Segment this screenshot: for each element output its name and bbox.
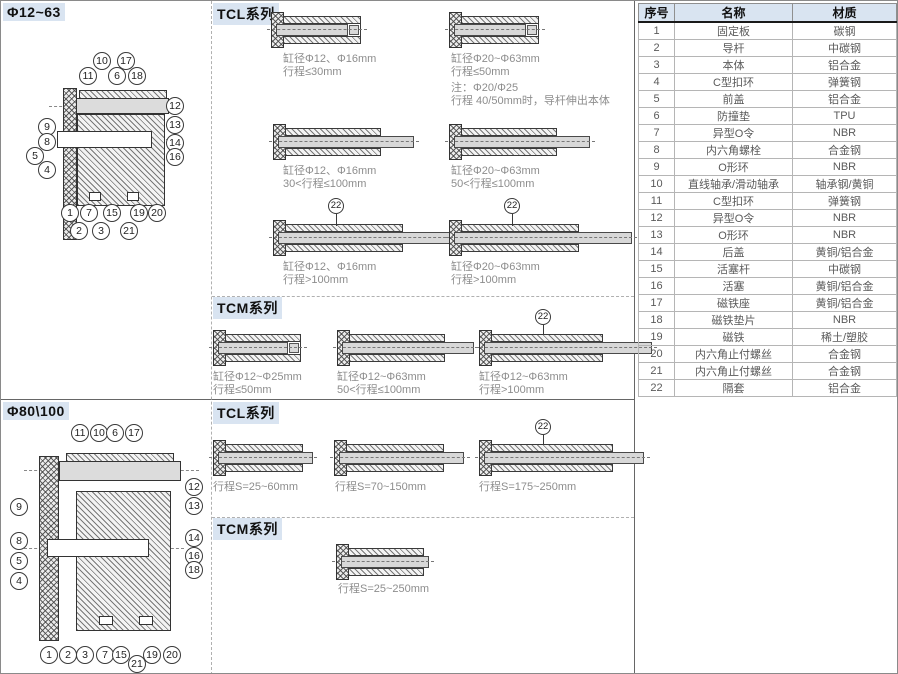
body-wall	[462, 148, 556, 155]
diagram-caption: 缸径Φ20~Φ63mm 50<行程≤100mm	[451, 165, 540, 191]
cross-section-drawing-large-bore: 11 10 6 17 12 13 14 16 18 9 8 5 4 1 2 3 …	[9, 421, 209, 674]
end-cover	[527, 25, 537, 35]
callout-1: 1	[61, 204, 79, 222]
table-row: 13O形环NBR	[639, 227, 897, 244]
body-wall	[492, 354, 602, 361]
body-wall	[226, 445, 302, 452]
centerline	[332, 561, 434, 562]
callout-22: 22	[535, 309, 551, 325]
diagram-caption: 缸径Φ12、Φ16mm 30<行程≤100mm	[283, 165, 376, 191]
callout-17: 17	[125, 424, 143, 442]
body-wall	[492, 464, 612, 471]
body-wall	[350, 335, 444, 342]
datasheet-page: Φ12~63 TCL系列 TCM系列 Φ80\100 TCL系列 TCM系列 1…	[0, 0, 898, 674]
port	[99, 616, 113, 625]
table-row: 16活塞黄铜/铝合金	[639, 278, 897, 295]
centerline	[445, 141, 595, 142]
dashed-column-divider	[211, 1, 212, 674]
body-wall	[226, 464, 302, 471]
diagram-caption: 缸径Φ12~Φ25mm 行程≤50mm	[213, 371, 302, 397]
guide-rod	[339, 452, 464, 464]
diagram-caption: 行程S=25~60mm	[213, 481, 298, 494]
piston-rod-section	[47, 539, 149, 557]
guide-rod	[278, 232, 456, 244]
tcl-series-label-bottom: TCL系列	[213, 402, 279, 424]
guide-rod	[59, 461, 181, 481]
piston-rod-section	[57, 131, 152, 148]
diagram-caption: 缸径Φ20~Φ63mm 行程>100mm	[451, 261, 540, 287]
guide-rod	[218, 452, 313, 464]
body-wall	[226, 335, 300, 342]
callout-22: 22	[535, 419, 551, 435]
diagram-caption: 行程S=70~150mm	[335, 481, 426, 494]
body-wall	[349, 568, 423, 575]
callout-4: 4	[10, 572, 28, 590]
centerline	[333, 347, 479, 348]
body-wall	[347, 445, 443, 452]
end-cover	[289, 343, 299, 353]
table-row: 18磁铁垫片NBR	[639, 312, 897, 329]
callout-leader	[543, 325, 544, 335]
centerline	[269, 237, 461, 238]
cylinder-body-section	[76, 491, 171, 631]
centerline	[269, 141, 419, 142]
callout-7: 7	[80, 204, 98, 222]
body-wall	[284, 17, 360, 24]
table-row: 17磁铁座黄铜/铝合金	[639, 295, 897, 312]
centerline	[475, 457, 650, 458]
callout-4: 4	[38, 161, 56, 179]
guide-rod	[276, 24, 348, 36]
port	[89, 192, 101, 201]
table-row: 12异型O令NBR	[639, 210, 897, 227]
body-wall	[462, 244, 578, 251]
centerline	[330, 457, 470, 458]
body-wall	[492, 335, 602, 342]
table-row: 21内六角止付螺丝合金钢	[639, 363, 897, 380]
diagram-caption: 行程S=175~250mm	[479, 481, 576, 494]
body-wall	[350, 354, 444, 361]
guide-rod	[484, 452, 644, 464]
centerline	[445, 29, 545, 30]
tcm-series-label-bottom: TCM系列	[213, 518, 282, 540]
body-wall	[347, 464, 443, 471]
callout-13: 13	[185, 497, 203, 515]
parts-table: 序号 名称 材质 1固定板碳钢 2导杆中碳钢 3本体铝合金 4C型扣环弹簧钢 5…	[638, 3, 897, 397]
table-header-row: 序号 名称 材质	[639, 4, 897, 23]
table-row: 2导杆中碳钢	[639, 40, 897, 57]
col-header-material: 材质	[793, 4, 897, 23]
callout-leader	[336, 214, 337, 226]
centerline	[209, 457, 317, 458]
col-header-no: 序号	[639, 4, 675, 23]
table-row: 6防撞垫TPU	[639, 108, 897, 125]
diagram-caption: 缸径Φ20~Φ63mm 行程≤50mm 注：Φ20/Φ25 行程 40/50mm…	[451, 53, 610, 108]
callout-6: 6	[108, 67, 126, 85]
body-wall	[462, 36, 538, 43]
bore-range-title-top: Φ12~63	[3, 3, 65, 21]
table-row: 1固定板碳钢	[639, 22, 897, 40]
body-wall	[349, 549, 423, 556]
body-wall	[492, 445, 612, 452]
vertical-divider	[634, 1, 635, 674]
callout-19: 19	[130, 204, 148, 222]
table-row: 4C型扣环弹簧钢	[639, 74, 897, 91]
centerline	[445, 237, 637, 238]
callout-12: 12	[185, 478, 203, 496]
guide-rod	[218, 342, 288, 354]
callout-leader	[543, 435, 544, 445]
guide-rod	[454, 136, 590, 148]
table-row: 19磁铁稀土/塑胶	[639, 329, 897, 346]
body-wall	[462, 17, 538, 24]
body-wall	[462, 225, 578, 232]
callout-10: 10	[93, 52, 111, 70]
tcm-series-label-top: TCM系列	[213, 297, 282, 319]
guide-rod	[454, 24, 526, 36]
centerline	[475, 347, 657, 348]
callout-3: 3	[92, 222, 110, 240]
table-row: 14后盖黄铜/铝合金	[639, 244, 897, 261]
table-row: 10直线轴承/滑动轴承轴承钢/黄铜	[639, 176, 897, 193]
callout-16: 16	[166, 148, 184, 166]
callout-3: 3	[76, 646, 94, 664]
diagram-caption: 缸径Φ12~Φ63mm 50<行程≤100mm	[337, 371, 426, 397]
callout-11: 11	[71, 424, 89, 442]
table-row: 15活塞杆中碳钢	[639, 261, 897, 278]
guide-rod	[342, 342, 474, 354]
diagram-caption: 缸径Φ12、Φ16mm 行程>100mm	[283, 261, 376, 287]
table-row: 22隔套铝合金	[639, 380, 897, 397]
table-row: 9O形环NBR	[639, 159, 897, 176]
body-wall	[286, 129, 380, 136]
table-row: 3本体铝合金	[639, 57, 897, 74]
callout-22: 22	[328, 198, 344, 214]
bore-range-title-bottom: Φ80\100	[3, 402, 69, 420]
guide-rod	[484, 342, 652, 354]
body-wall	[286, 148, 380, 155]
guide-rod	[454, 232, 632, 244]
callout-leader	[512, 214, 513, 226]
horizontal-divider	[1, 399, 635, 400]
centerline	[267, 29, 367, 30]
callout-2: 2	[70, 222, 88, 240]
guide-rod	[74, 98, 169, 114]
table-row: 11C型扣环弹簧钢	[639, 193, 897, 210]
body-wall	[286, 225, 402, 232]
centerline	[209, 347, 307, 348]
body-wall	[226, 354, 300, 361]
col-header-name: 名称	[675, 4, 793, 23]
port	[127, 192, 139, 201]
body-wall	[462, 129, 556, 136]
callout-5: 5	[10, 552, 28, 570]
callout-2: 2	[59, 646, 77, 664]
diagram-caption: 行程S=25~250mm	[338, 583, 429, 596]
callout-8: 8	[10, 532, 28, 550]
callout-20: 20	[148, 204, 166, 222]
diagram-caption: 缸径Φ12~Φ63mm 行程>100mm	[479, 371, 568, 397]
callout-11: 11	[79, 67, 97, 85]
callout-20: 20	[163, 646, 181, 664]
cross-section-drawing-small-bore: 10 17 11 6 18 12 13 14 16 9 8 5 4 1 7 15…	[9, 46, 206, 246]
tcl-series-label-top: TCL系列	[213, 3, 279, 25]
callout-15: 15	[103, 204, 121, 222]
callout-18: 18	[185, 561, 203, 579]
callout-6: 6	[106, 424, 124, 442]
guide-rod	[341, 556, 429, 568]
callout-21: 21	[120, 222, 138, 240]
callout-1: 1	[40, 646, 58, 664]
table-row: 5前盖铝合金	[639, 91, 897, 108]
diagram-caption: 缸径Φ12、Φ16mm 行程≤30mm	[283, 53, 376, 79]
callout-14: 14	[185, 529, 203, 547]
guide-rod	[278, 136, 414, 148]
table-row: 20内六角止付螺丝合金钢	[639, 346, 897, 363]
callout-9: 9	[10, 498, 28, 516]
body-wall	[286, 244, 402, 251]
callout-13: 13	[166, 116, 184, 134]
table-row: 7异型O令NBR	[639, 125, 897, 142]
callout-22: 22	[504, 198, 520, 214]
table-row: 8内六角螺栓合金钢	[639, 142, 897, 159]
callout-12: 12	[166, 97, 184, 115]
callout-18: 18	[128, 67, 146, 85]
port	[139, 616, 153, 625]
end-cover	[349, 25, 359, 35]
callout-21: 21	[128, 655, 146, 673]
body-wall	[284, 36, 360, 43]
